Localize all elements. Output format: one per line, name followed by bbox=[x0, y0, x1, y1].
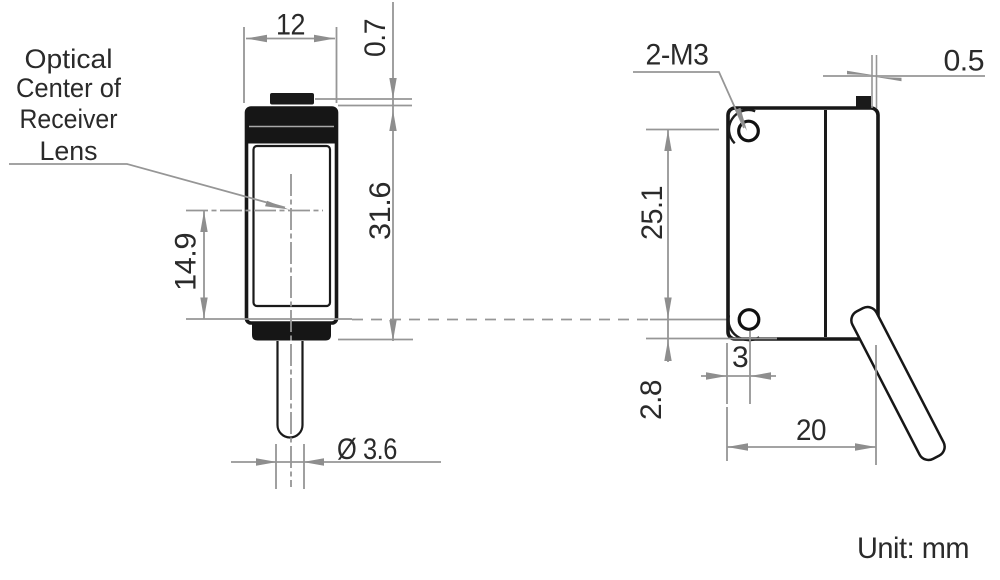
svg-text:Unit: mm: Unit: mm bbox=[857, 532, 969, 565]
svg-text:25.1: 25.1 bbox=[636, 186, 669, 240]
svg-text:Lens: Lens bbox=[40, 136, 98, 166]
svg-text:Optical: Optical bbox=[25, 44, 113, 74]
svg-text:2.8: 2.8 bbox=[635, 380, 668, 420]
svg-text:20: 20 bbox=[796, 414, 826, 447]
svg-text:Center of: Center of bbox=[16, 73, 122, 103]
svg-text:31.6: 31.6 bbox=[364, 182, 397, 240]
svg-text:Receiver: Receiver bbox=[20, 104, 118, 134]
svg-text:2-M3: 2-M3 bbox=[646, 39, 709, 72]
svg-text:0.5: 0.5 bbox=[944, 45, 985, 78]
svg-text:Ø 3.6: Ø 3.6 bbox=[337, 433, 397, 466]
svg-text:14.9: 14.9 bbox=[170, 233, 203, 291]
svg-text:12: 12 bbox=[276, 9, 305, 42]
svg-text:3: 3 bbox=[732, 341, 748, 374]
svg-text:0.7: 0.7 bbox=[359, 19, 392, 57]
